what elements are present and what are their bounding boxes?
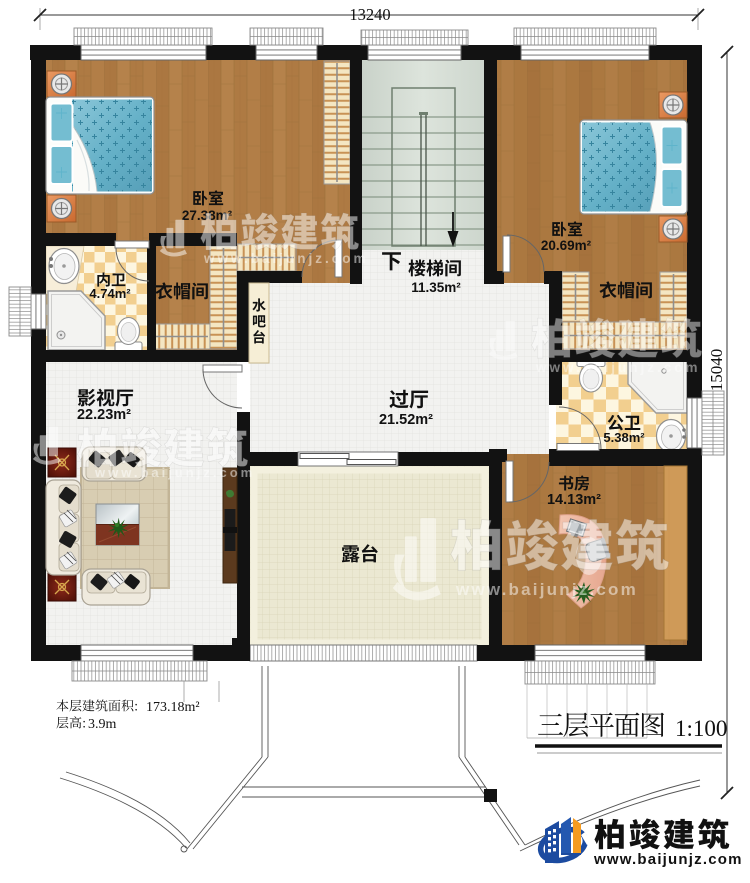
svg-text:www.baijunjz.com: www.baijunjz.com bbox=[535, 360, 701, 375]
svg-text:5.38m²: 5.38m² bbox=[603, 430, 645, 445]
svg-text:4.74m²: 4.74m² bbox=[89, 286, 131, 301]
svg-text:173.18m²: 173.18m² bbox=[146, 700, 200, 715]
svg-text:14.13m²: 14.13m² bbox=[547, 492, 601, 508]
svg-text:15040: 15040 bbox=[707, 349, 726, 392]
svg-text:3.9m: 3.9m bbox=[88, 717, 117, 732]
svg-text:www.baijunjz.com: www.baijunjz.com bbox=[455, 580, 638, 599]
svg-text:20.69m²: 20.69m² bbox=[541, 238, 592, 253]
svg-text:11.35m²: 11.35m² bbox=[411, 280, 461, 295]
svg-text:1:100: 1:100 bbox=[675, 716, 727, 741]
svg-text:13240: 13240 bbox=[349, 5, 390, 24]
svg-text:www.baijunjz.com: www.baijunjz.com bbox=[94, 465, 255, 480]
svg-text:www.baijunjz.com: www.baijunjz.com bbox=[203, 251, 369, 266]
svg-text:21.52m²: 21.52m² bbox=[379, 412, 433, 428]
svg-text:22.23m²: 22.23m² bbox=[77, 407, 131, 423]
svg-text:www.baijunjz.com: www.baijunjz.com bbox=[593, 851, 743, 868]
